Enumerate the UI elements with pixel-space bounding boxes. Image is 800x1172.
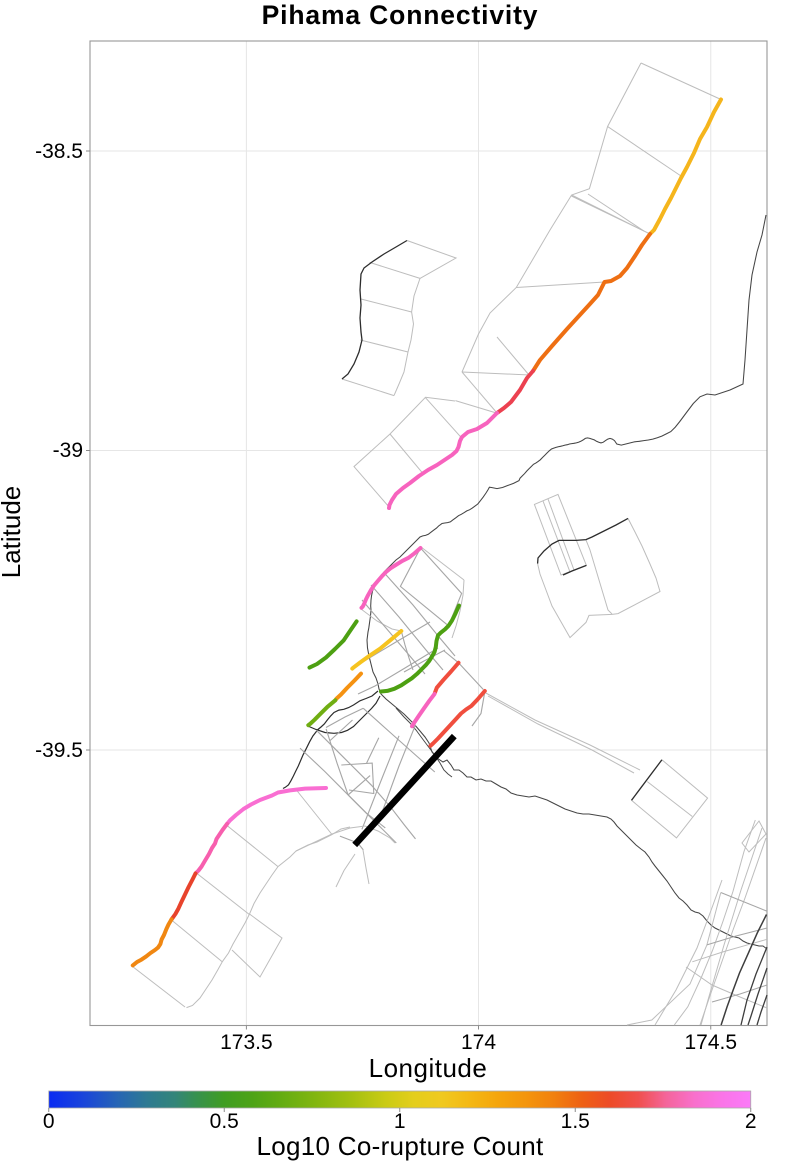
svg-text:0.5: 0.5 bbox=[210, 1110, 239, 1133]
svg-text:0: 0 bbox=[43, 1110, 55, 1133]
svg-text:-39.5: -39.5 bbox=[35, 739, 83, 762]
svg-text:1.5: 1.5 bbox=[561, 1110, 590, 1133]
svg-text:2: 2 bbox=[745, 1110, 757, 1133]
svg-text:Latitude: Latitude bbox=[0, 486, 26, 579]
svg-text:Pihama Connectivity: Pihama Connectivity bbox=[262, 0, 539, 30]
svg-text:Longitude: Longitude bbox=[369, 1053, 488, 1083]
svg-text:Log10 Co-rupture Count: Log10 Co-rupture Count bbox=[256, 1131, 543, 1161]
svg-text:1: 1 bbox=[394, 1110, 406, 1133]
svg-text:173.5: 173.5 bbox=[220, 1031, 273, 1054]
svg-text:-39: -39 bbox=[53, 439, 83, 462]
svg-text:174: 174 bbox=[461, 1031, 496, 1054]
svg-text:-38.5: -38.5 bbox=[35, 140, 83, 163]
svg-text:174.5: 174.5 bbox=[684, 1031, 737, 1054]
